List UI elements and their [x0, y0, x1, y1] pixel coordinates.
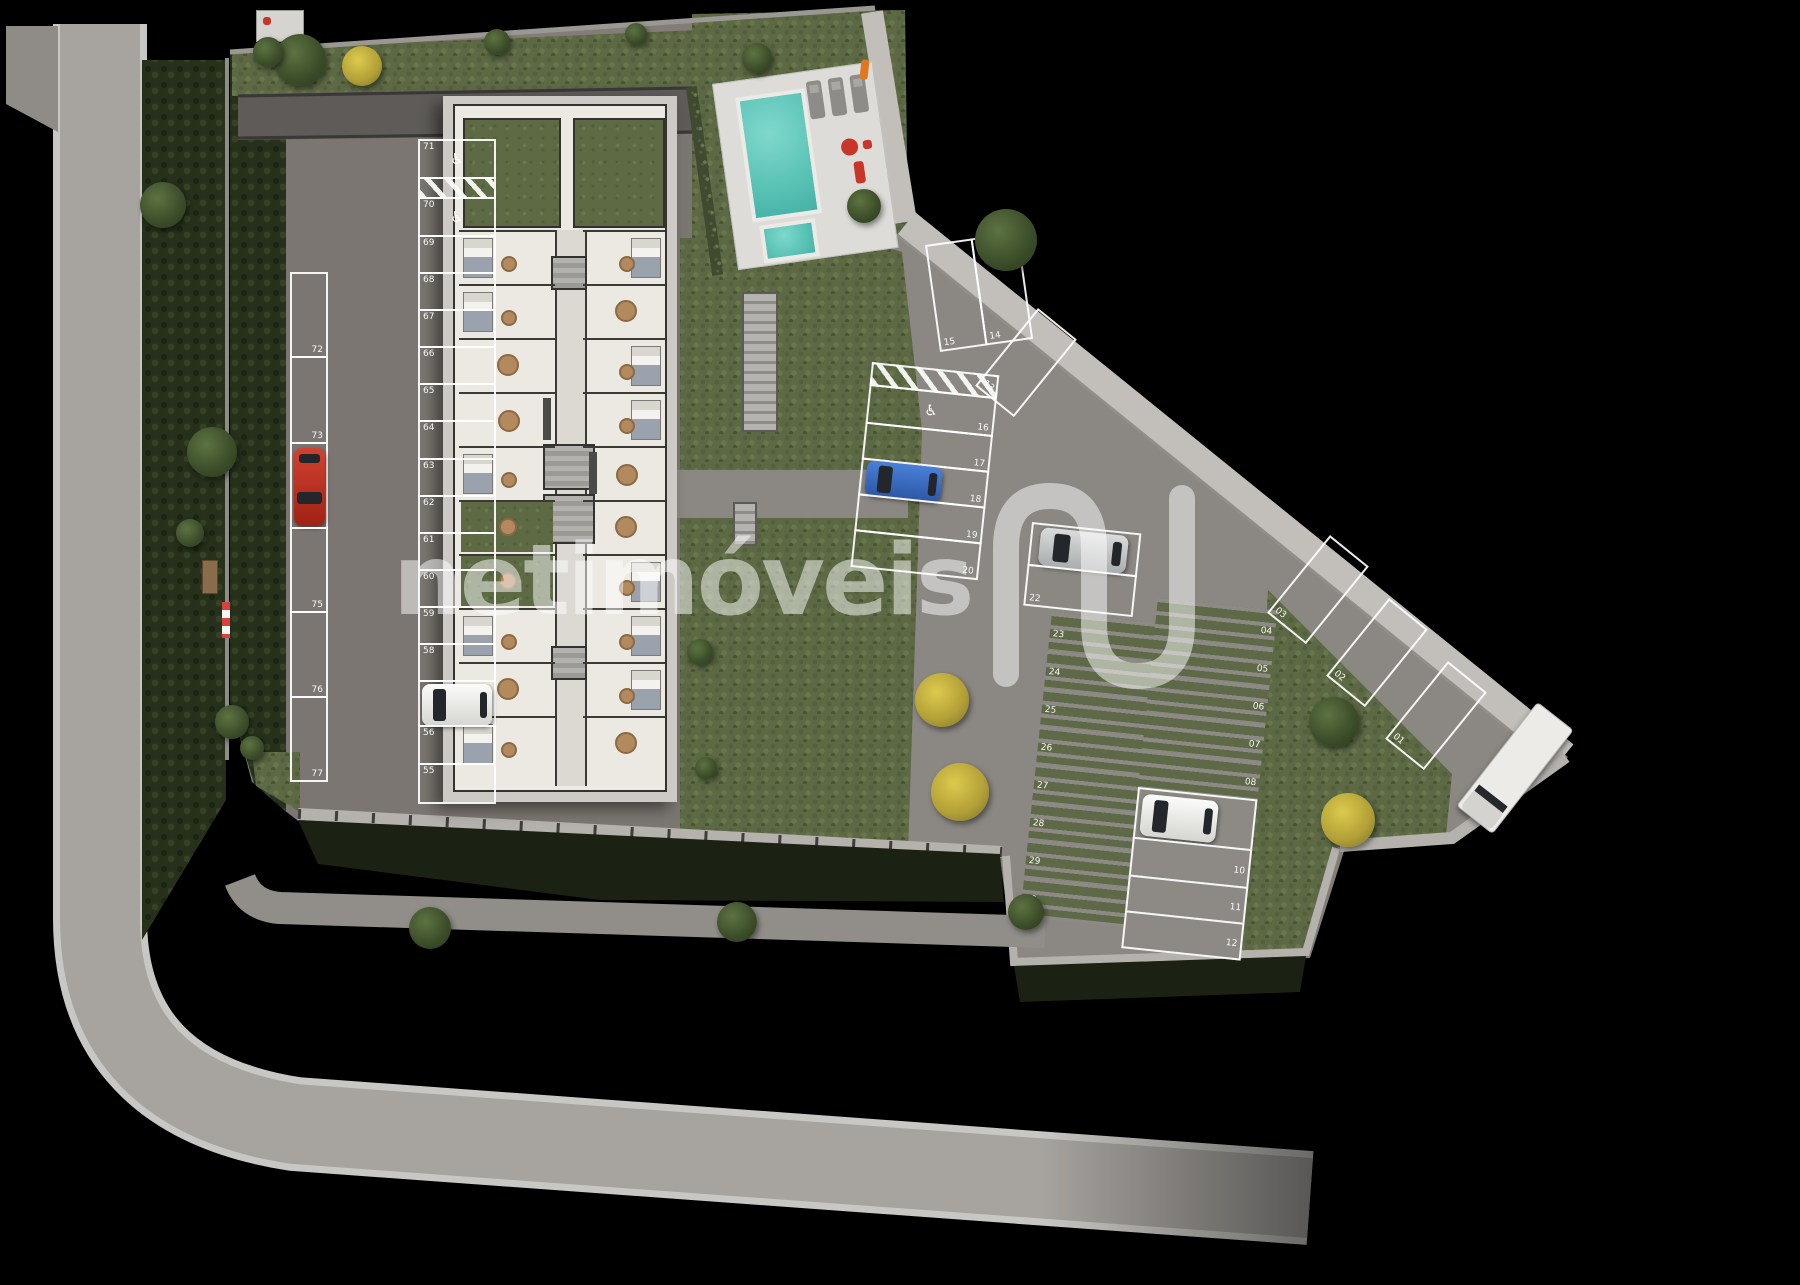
netimoveis-logo-icon: [0, 0, 1800, 1285]
site-plan-rendering: netimóveis 72737475767771♿70♿69686766656…: [0, 0, 1800, 1285]
